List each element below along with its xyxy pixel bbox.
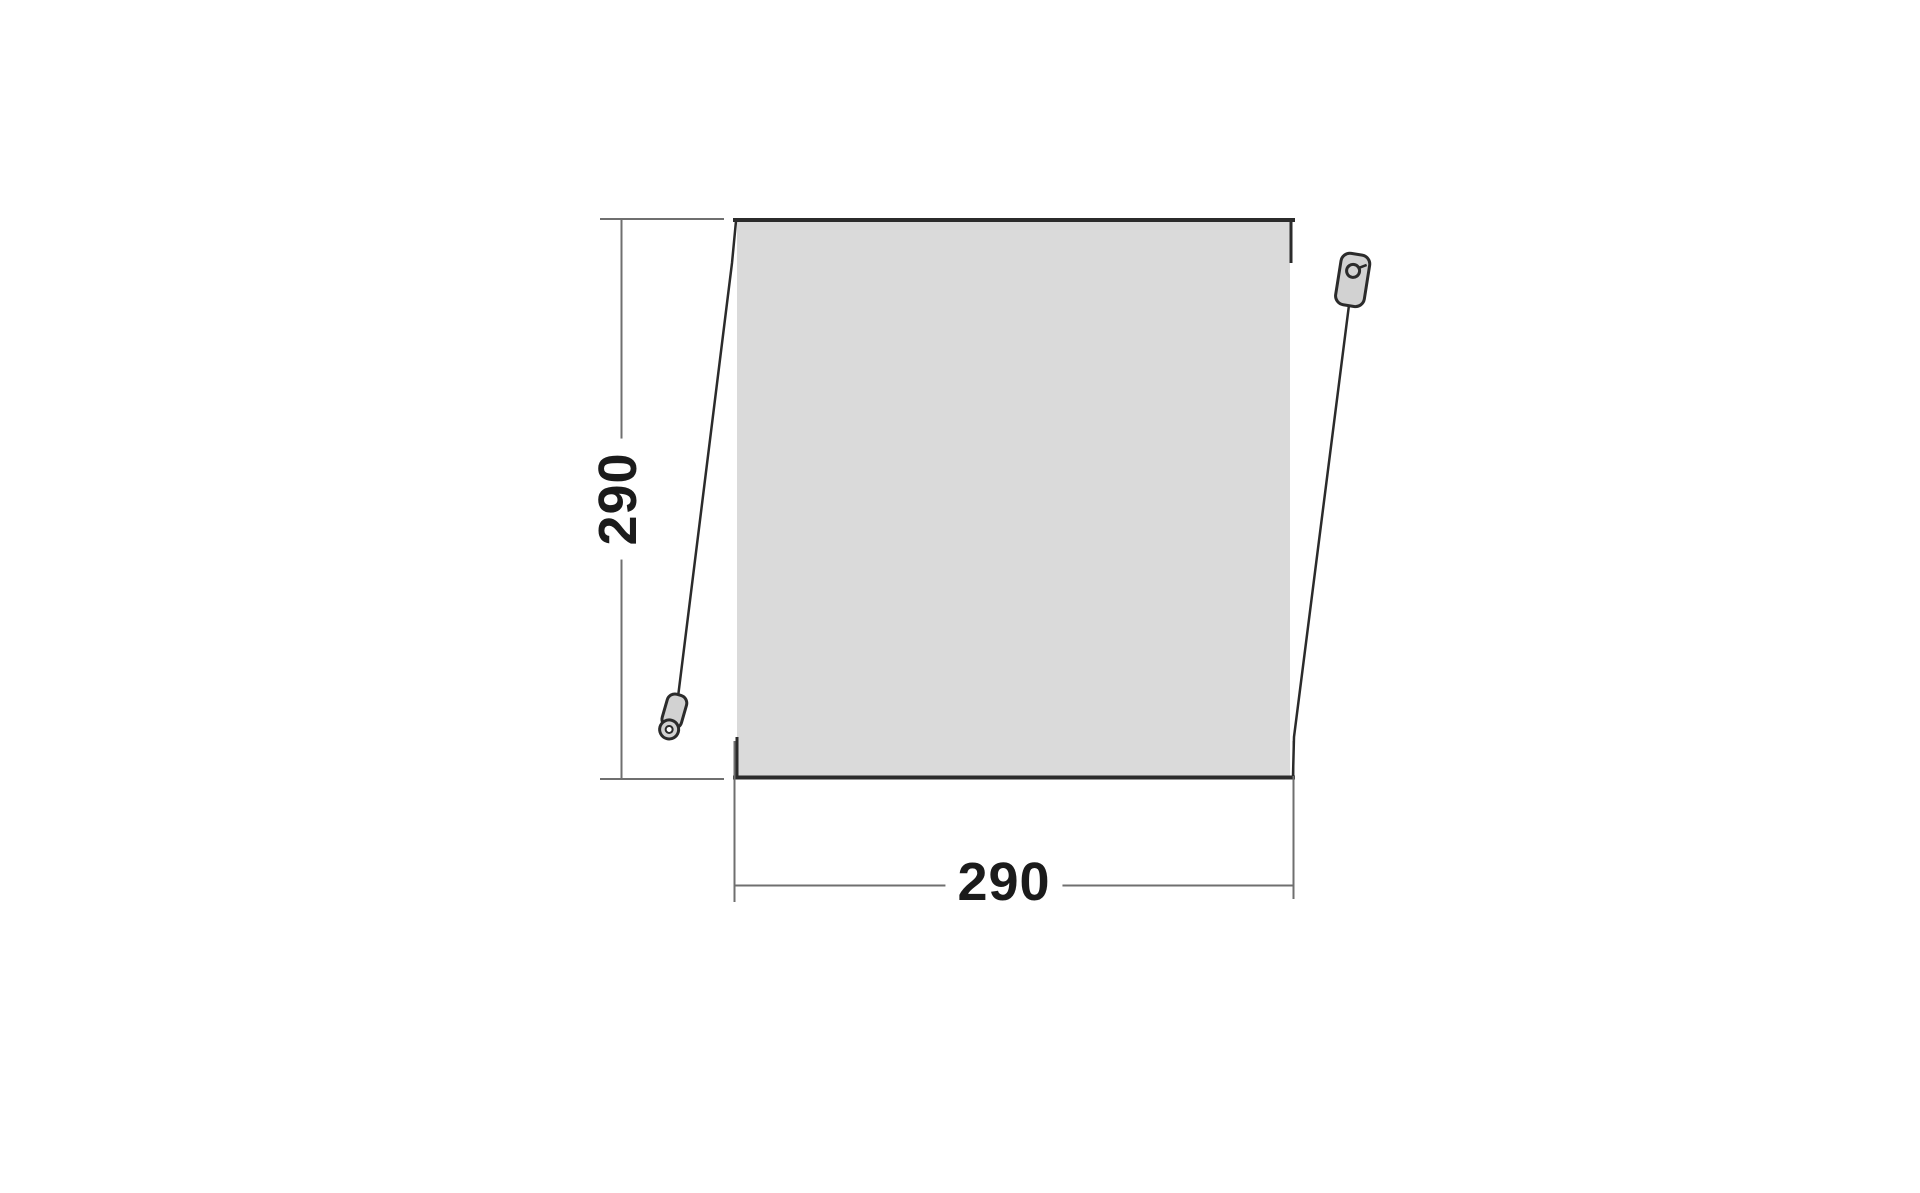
tarp-footprint-diagram <box>0 0 1920 1193</box>
width-dimension-label: 290 <box>945 855 1062 909</box>
guy-rope-right <box>1293 305 1349 776</box>
height-dimension-label: 290 <box>591 438 645 559</box>
peg-right-icon <box>1334 252 1371 308</box>
dimension-diagram-canvas: 290 290 <box>0 0 1920 1193</box>
peg-left-icon <box>657 692 689 741</box>
peg-right-body <box>1334 252 1371 308</box>
panel-fill <box>737 219 1290 778</box>
guy-rope-left <box>678 221 736 697</box>
peg-left-ring-hole <box>665 725 674 734</box>
